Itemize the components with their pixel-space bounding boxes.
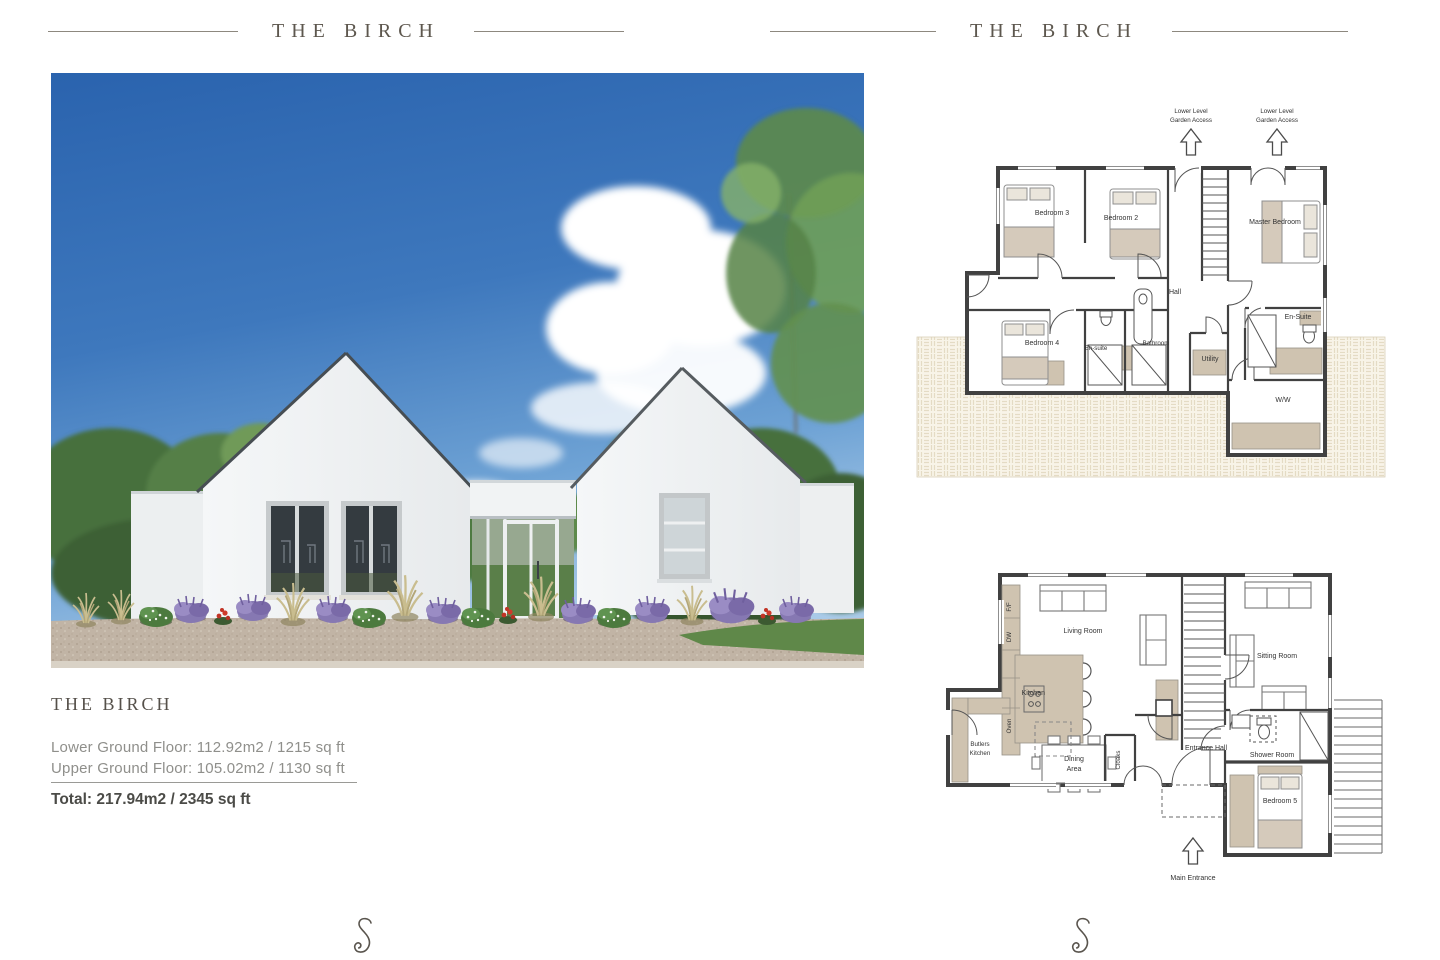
- room-label-ensuite-small: En-suite: [1085, 345, 1108, 352]
- header-rule: [1172, 31, 1348, 32]
- room-label-bedroom3: Bedroom 3: [1035, 210, 1069, 217]
- room-label-sitting: Sitting Room: [1257, 653, 1297, 660]
- french-doors: [264, 501, 331, 600]
- room-label-ensuite: En-Suite: [1285, 314, 1312, 321]
- exterior-render: [51, 73, 864, 668]
- header-left: THE BIRCH: [48, 18, 648, 44]
- room-label-cloaks: Cloaks: [1115, 751, 1122, 770]
- up-arrow-icon: [1267, 129, 1287, 155]
- external-steps: [1334, 700, 1382, 853]
- access-label: Lower Level: [1260, 108, 1293, 115]
- room-label-entrance-hall: Entrance Hall: [1185, 745, 1227, 752]
- brand-monogram-icon: [350, 915, 376, 959]
- total-area: Total: 217.94m2 / 2345 sq ft: [51, 791, 251, 809]
- room-label-kitchen: Kitchen: [1022, 690, 1045, 697]
- access-label: Garden Access: [1256, 117, 1298, 124]
- appliance-label-oven: Oven: [1006, 718, 1013, 733]
- main-entrance-label: Main Entrance: [1170, 875, 1215, 882]
- room-label-master: Master Bedroom: [1249, 219, 1301, 226]
- floorplan-lower-ground: Lower Level Garden Access Lower Level Ga…: [910, 93, 1390, 483]
- brochure-page: THE BIRCH THE BIRCH: [0, 0, 1440, 960]
- up-arrow-icon: [1181, 129, 1201, 155]
- room-label-living: Living Room: [1064, 628, 1103, 635]
- property-name: THE BIRCH: [51, 694, 173, 715]
- header-rule: [770, 31, 936, 32]
- appliance-label-dw: DW: [1006, 632, 1013, 642]
- room-label-hall: Hall: [1169, 289, 1182, 296]
- room-label-butlers: Butlers: [970, 741, 989, 748]
- room-label-dining: Dining: [1064, 756, 1084, 763]
- room-label-ww: W/W: [1275, 397, 1291, 404]
- room-label-bedroom2: Bedroom 2: [1104, 215, 1138, 222]
- room-label-shower: Shower Room: [1250, 752, 1295, 759]
- room-label-utility: Utility: [1201, 356, 1219, 363]
- access-label: Lower Level: [1174, 108, 1207, 115]
- header-rule: [474, 31, 624, 32]
- french-doors: [339, 501, 404, 600]
- total-divider: [51, 782, 357, 783]
- room-label-bedroom5: Bedroom 5: [1263, 798, 1297, 805]
- gravel-edge: [51, 661, 864, 668]
- gable-window: [657, 493, 712, 583]
- glazed-link: [470, 480, 576, 623]
- room-label-butlers: Kitchen: [970, 750, 991, 757]
- room-label-bathroom: Bathroom: [1143, 340, 1170, 347]
- page-title: THE BIRCH: [272, 20, 440, 43]
- access-label: Garden Access: [1170, 117, 1212, 124]
- floorplan-upper-ground: Living Room Kitchen Sitting Room Butlers…: [910, 560, 1390, 890]
- bed5: [1258, 774, 1302, 848]
- brand-monogram-icon: [1068, 915, 1094, 959]
- lower-floor-area: Lower Ground Floor: 112.92m2 / 1215 sq f…: [51, 739, 345, 756]
- appliance-label-ff: F/F: [1006, 602, 1013, 611]
- room-label-dining: Area: [1067, 766, 1082, 773]
- up-arrow-icon: [1183, 838, 1203, 864]
- header-right: THE BIRCH: [770, 18, 1392, 44]
- upper-floor-area: Upper Ground Floor: 105.02m2 / 1130 sq f…: [51, 760, 345, 777]
- header-rule: [48, 31, 238, 32]
- page-title: THE BIRCH: [970, 20, 1138, 43]
- room-label-bedroom4: Bedroom 4: [1025, 340, 1059, 347]
